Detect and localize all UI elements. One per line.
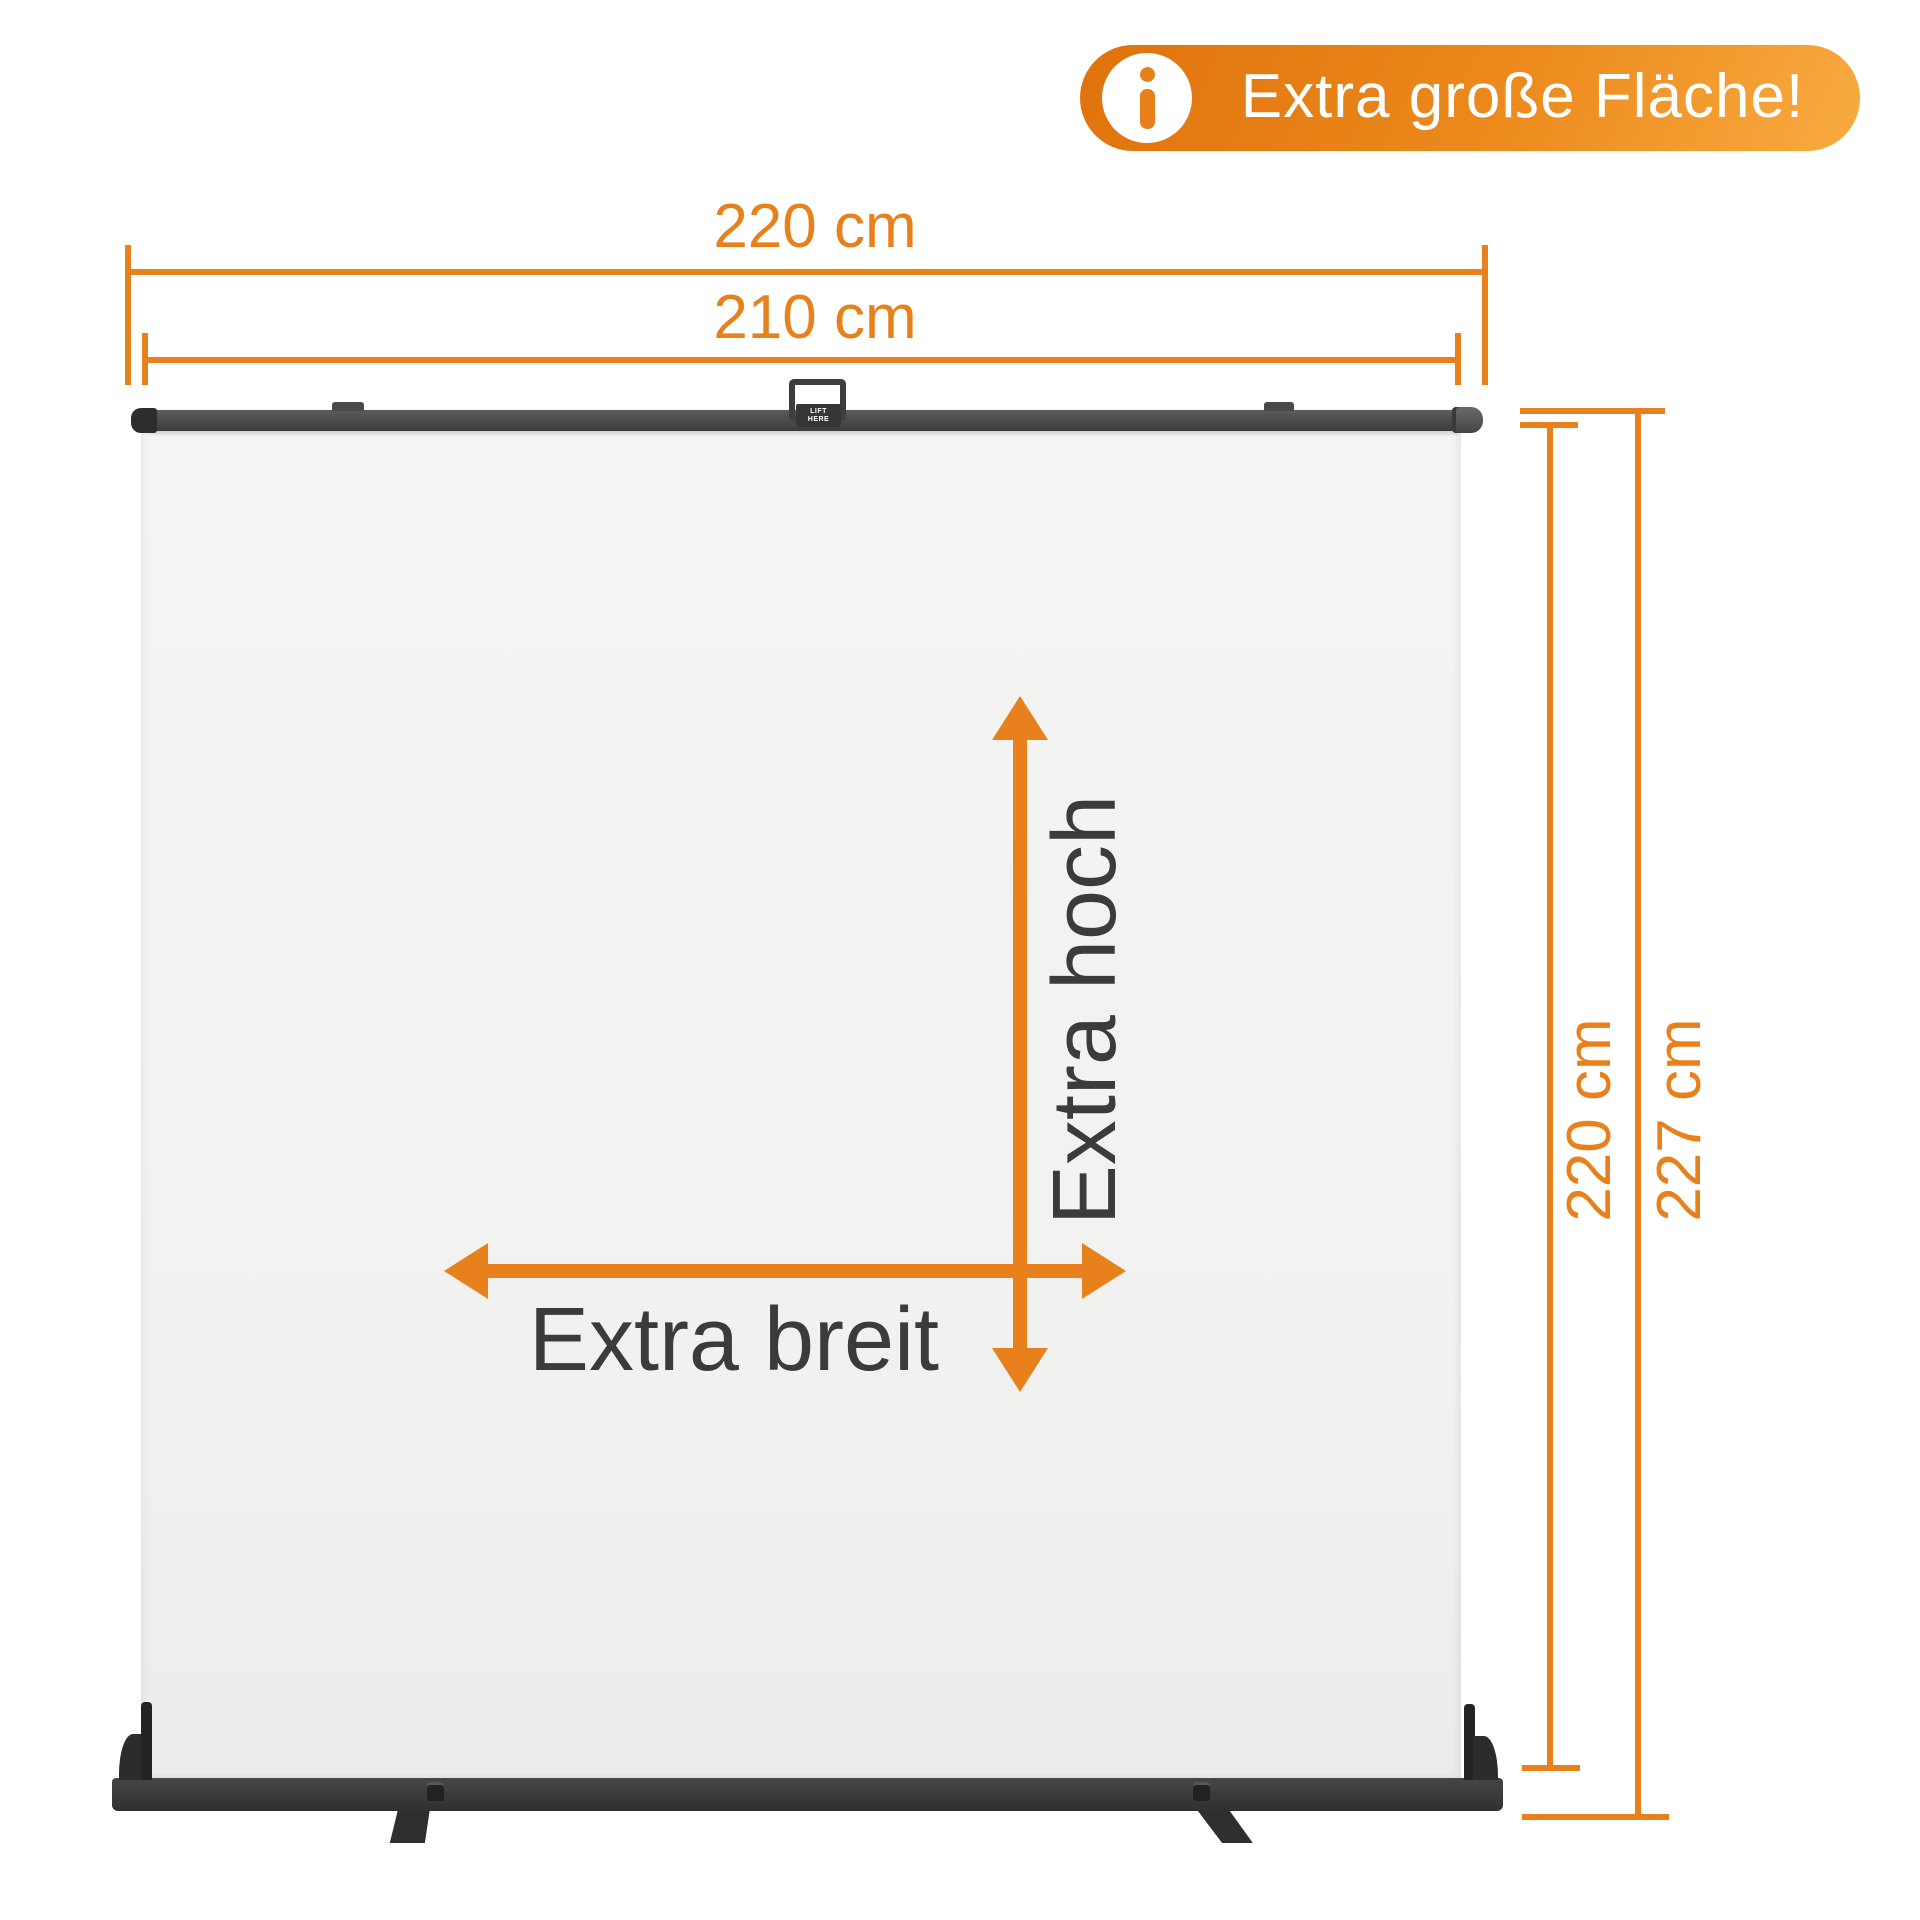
base-end-bracket-right [1473,1736,1498,1780]
backdrop-base-bar [112,1778,1503,1811]
dimension-line-total-width [128,269,1485,275]
width-arrow-shaft [484,1264,1082,1278]
dimension-line-total-height [1635,411,1641,1817]
dimension-label-screen-height: 220 cm [1559,970,1621,1270]
dimension-tick-total-width-left [125,245,131,385]
dimension-tick-screen-width-left [142,333,148,385]
dimension-tick-screen-width-right [1455,333,1461,385]
badge-label: Extra große Fläche! [1215,45,1830,151]
dimension-label-total-height: 227 cm [1649,970,1711,1270]
info-icon-dot [1140,67,1155,82]
dimension-tick-total-width-right [1482,245,1488,385]
base-lock-knob-left [427,1782,444,1801]
lift-handle-label-line2: HERE [796,416,841,424]
dimension-label-screen-width: 210 cm [620,287,1010,349]
top-bar-clamp-right [1264,402,1294,411]
base-foot-left [386,1810,440,1843]
top-bar-end-cap-right [1452,407,1483,433]
annotation-extra-breit: Extra breit [474,1292,994,1388]
dimension-line-screen-width [145,357,1458,363]
info-icon [1102,53,1192,143]
lift-handle-label: LIFT HERE [796,404,841,427]
annotation-extra-hoch: Extra hoch [1037,750,1133,1270]
lift-handle-label-line1: LIFT [796,408,841,416]
dimension-tick-total-height-bottom [1522,1814,1669,1820]
height-arrow-shaft [1013,736,1027,1354]
base-upright-left [141,1702,152,1780]
dimension-tick-screen-height-bottom [1522,1765,1580,1771]
dimension-tick-screen-height-top [1520,422,1578,428]
info-badge: Extra große Fläche! [1080,45,1860,151]
top-bar-end-cap-left [131,408,157,433]
top-bar-clamp-left [332,402,364,411]
base-lock-knob-right [1193,1782,1210,1801]
backdrop-panel [141,431,1461,1778]
dimension-line-screen-height [1547,425,1553,1768]
dimension-label-total-width: 220 cm [620,196,1010,258]
dimension-tick-total-height-top [1520,408,1665,414]
product-dimension-diagram: Extra große Fläche! 220 cm 210 cm 220 cm… [0,0,1920,1920]
info-icon-stem [1140,89,1155,129]
base-foot-right [1196,1810,1254,1843]
